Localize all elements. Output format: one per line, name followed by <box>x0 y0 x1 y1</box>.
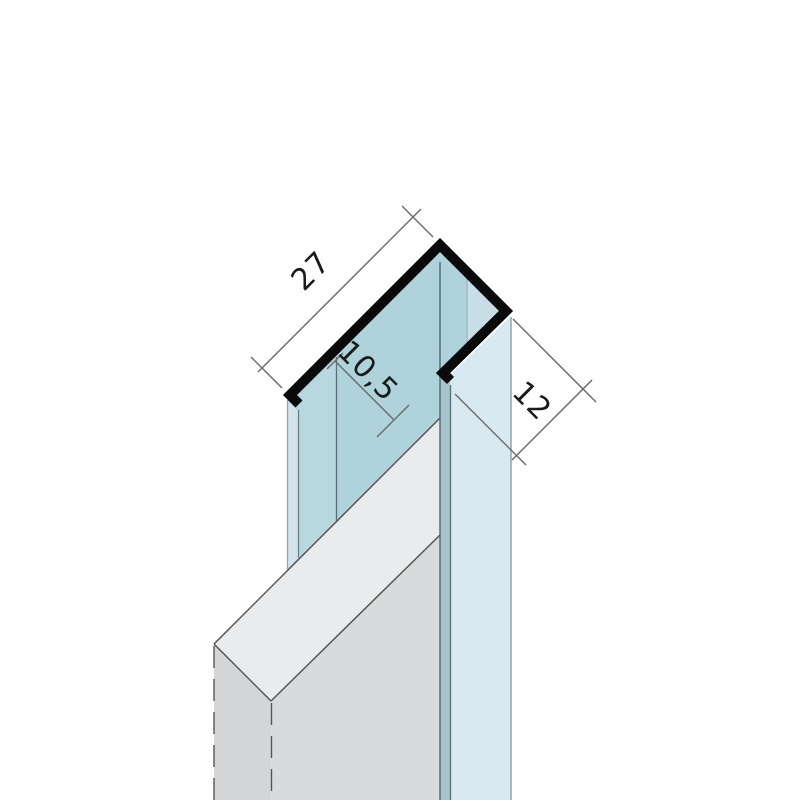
dim-27-ext-right <box>402 206 433 237</box>
leg-side-face <box>450 316 511 800</box>
dim-27-label: 27 <box>285 245 338 298</box>
profile-technical-drawing: 27 10,5 12 <box>0 0 800 800</box>
isometric-profile-diagram: 27 10,5 12 <box>0 0 800 800</box>
leg-end-strip <box>440 368 451 800</box>
dim-27-ext-left <box>251 357 282 388</box>
flange-end-strip <box>287 400 298 569</box>
dim-12-label: 12 <box>505 375 558 428</box>
